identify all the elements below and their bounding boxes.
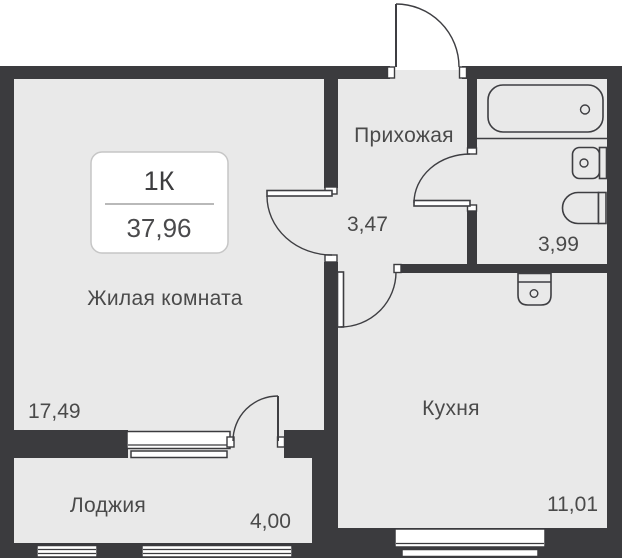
wall-top-right [462, 66, 622, 79]
bathroom-area: 3,99 [538, 233, 579, 256]
living-room-label: Жилая комната [87, 287, 243, 310]
kitchen-window [395, 529, 545, 557]
toilet-icon [563, 193, 607, 224]
entrance-jamb-left [388, 67, 395, 78]
wall-living-bottom-right [284, 430, 314, 458]
apartment-floor [6, 70, 616, 554]
kitchen-area: 11,01 [547, 493, 598, 516]
wall-top-left [0, 66, 390, 79]
unit-card: 1К 37,96 [91, 152, 228, 253]
entrance-door-icon [396, 4, 459, 67]
loggia-window-1 [37, 546, 97, 558]
kitchen-fixtures [518, 274, 551, 306]
unit-total-area: 37,96 [126, 213, 191, 243]
wall-loggia-right [312, 430, 338, 558]
living-door-jamb-bottom [325, 255, 337, 262]
floor-plan-drawing: 1К 37,96 Жилая комната 17,49 Прихожая 3,… [0, 0, 624, 558]
unit-type-label: 1К [144, 166, 175, 196]
hallway-label: Прихожая [354, 124, 454, 147]
loggia-area: 4,00 [250, 510, 291, 533]
living-room-area: 17,49 [28, 400, 81, 423]
loggia-label: Лоджия [70, 494, 146, 517]
wall-living-bottom-left [14, 430, 128, 458]
washbasin-icon [573, 148, 607, 179]
kitchen-door-jamb [394, 265, 401, 273]
floor-plan: 1К 37,96 Жилая комната 17,49 Прихожая 3,… [0, 0, 624, 558]
living-window [127, 432, 230, 458]
wall-living-hall-lower [324, 262, 338, 430]
wall-hall-bath-lower [467, 211, 477, 273]
wall-living-hall-upper [324, 79, 338, 188]
bathtub-icon [488, 85, 603, 132]
hallway-area: 3,47 [347, 213, 388, 236]
entrance-jamb-right [460, 67, 467, 78]
wall-left [0, 66, 14, 558]
bath-door-jamb-top [468, 148, 477, 154]
kitchen-sink-icon [518, 274, 551, 306]
loggia-window-2 [142, 546, 292, 558]
kitchen-label: Кухня [422, 397, 480, 420]
wall-hall-bath-upper [467, 79, 477, 149]
wall-right [607, 66, 622, 558]
wall-kitchen-top [400, 264, 607, 273]
